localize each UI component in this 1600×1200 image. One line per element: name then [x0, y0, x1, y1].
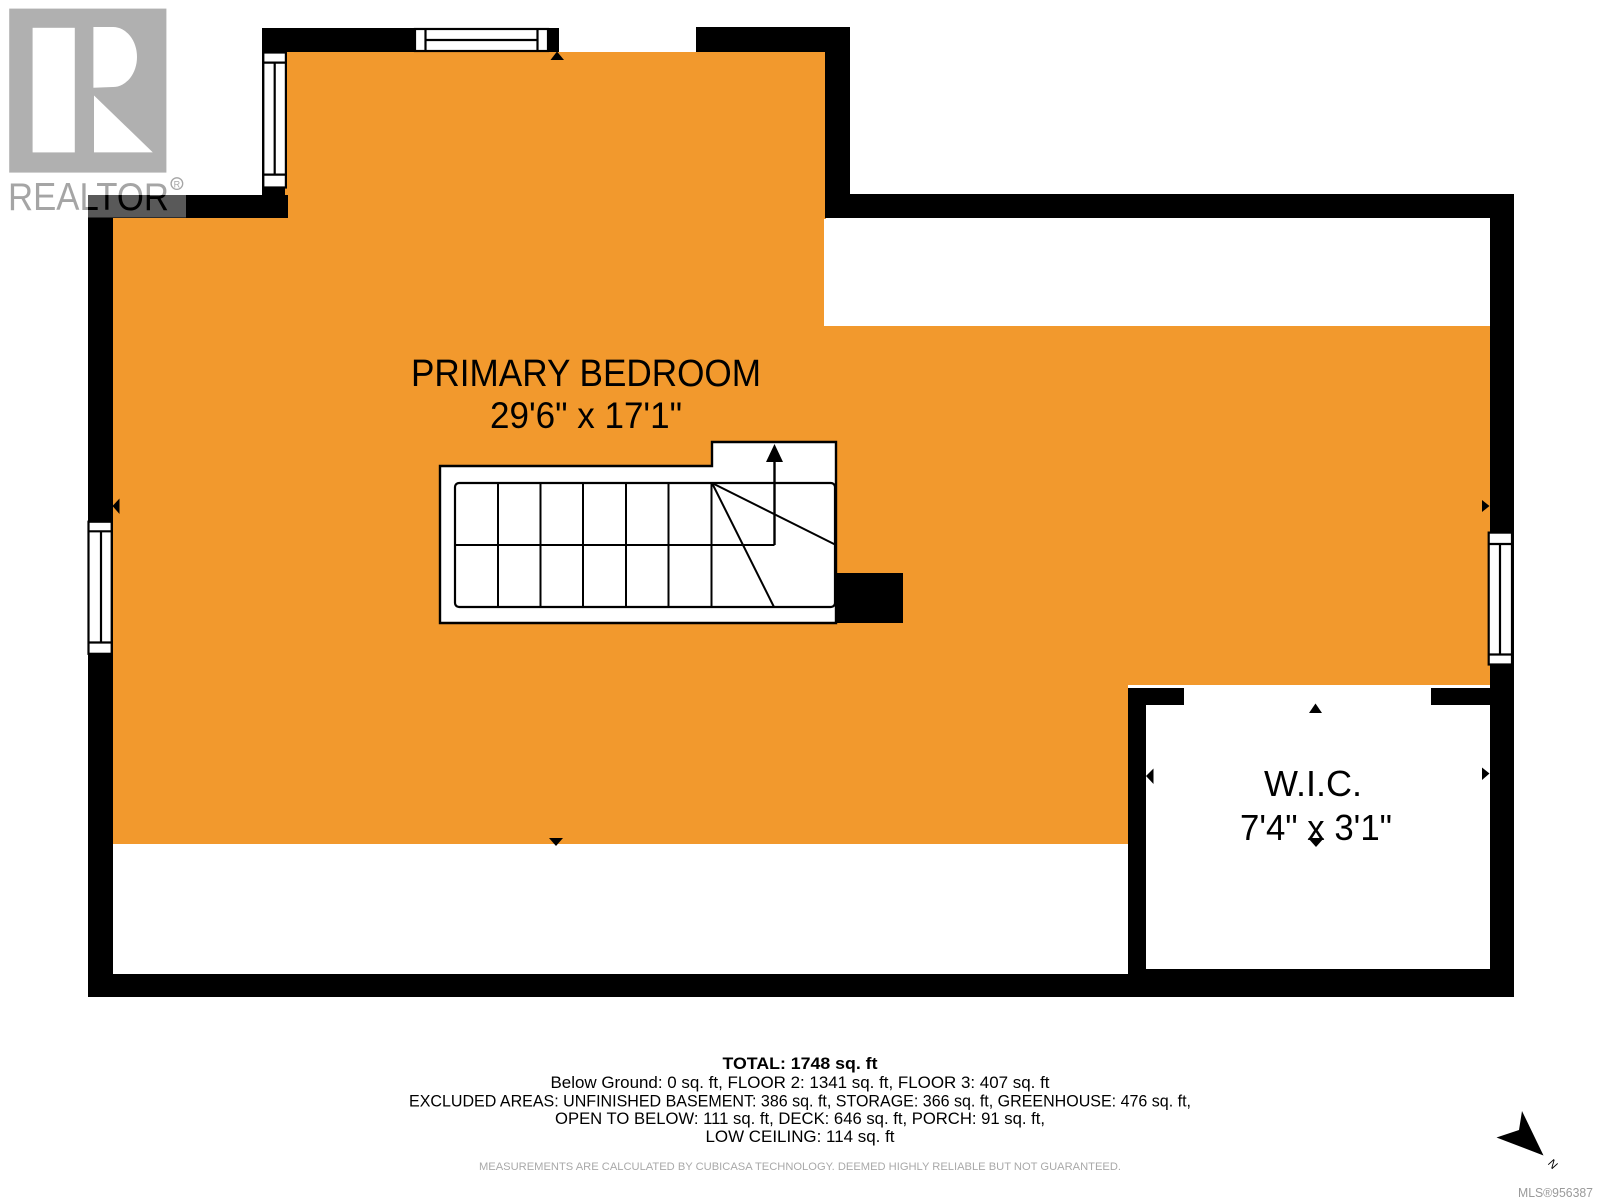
- svg-text:W.I.C.: W.I.C.: [1264, 763, 1362, 804]
- svg-text:OPEN TO BELOW: 111 sq. ft, DEC: OPEN TO BELOW: 111 sq. ft, DECK: 646 sq.…: [555, 1110, 1045, 1128]
- svg-text:LOW CEILING: 114 sq. ft: LOW CEILING: 114 sq. ft: [706, 1128, 895, 1146]
- svg-text:Below Ground: 0 sq. ft, FLOOR: Below Ground: 0 sq. ft, FLOOR 2: 1341 sq…: [551, 1074, 1050, 1092]
- svg-text:R: R: [174, 180, 181, 190]
- svg-text:EXCLUDED AREAS: UNFINISHED BAS: EXCLUDED AREAS: UNFINISHED BASEMENT: 386…: [409, 1093, 1191, 1111]
- svg-text:29'6" x 17'1": 29'6" x 17'1": [490, 395, 682, 436]
- svg-text:TOTAL: 1748 sq. ft: TOTAL: 1748 sq. ft: [723, 1054, 878, 1073]
- svg-text:7'4" x 3'1": 7'4" x 3'1": [1240, 807, 1392, 848]
- svg-text:REALTOR: REALTOR: [8, 176, 169, 219]
- svg-text:PRIMARY BEDROOM: PRIMARY BEDROOM: [411, 353, 761, 395]
- svg-text:MLS®956387: MLS®956387: [1518, 1185, 1593, 1200]
- svg-text:MEASUREMENTS ARE CALCULATED BY: MEASUREMENTS ARE CALCULATED BY CUBICASA …: [479, 1161, 1121, 1173]
